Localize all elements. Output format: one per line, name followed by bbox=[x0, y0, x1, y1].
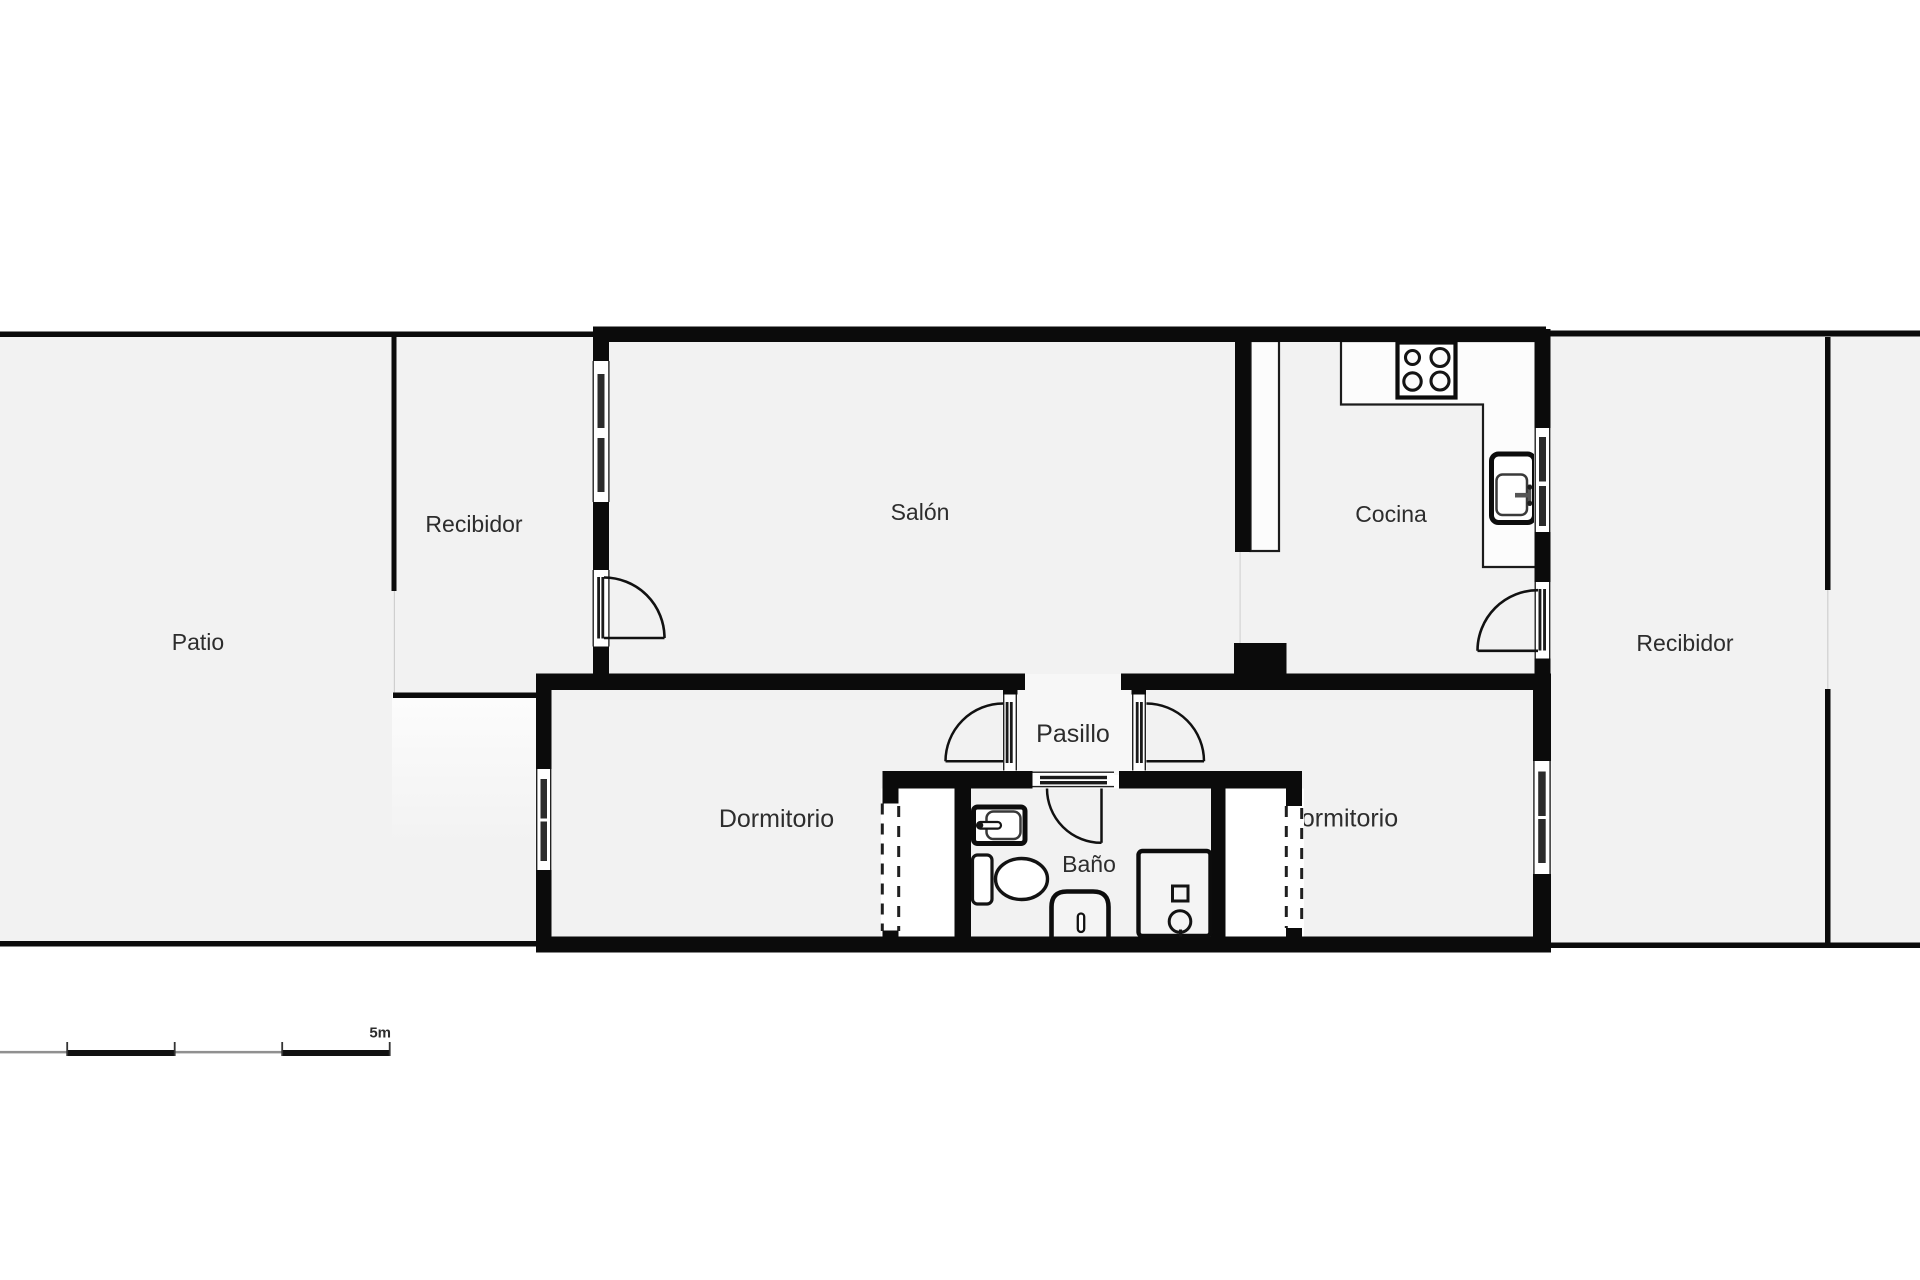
svg-text:Salón: Salón bbox=[891, 499, 950, 525]
svg-text:Recibidor: Recibidor bbox=[1636, 630, 1733, 656]
svg-text:Pasillo: Pasillo bbox=[1036, 720, 1110, 748]
svg-text:Cocina: Cocina bbox=[1355, 501, 1427, 527]
svg-text:5m: 5m bbox=[369, 1025, 391, 1042]
svg-text:Patio: Patio bbox=[172, 629, 224, 655]
svg-text:Dormitorio: Dormitorio bbox=[719, 805, 834, 833]
svg-text:Recibidor: Recibidor bbox=[425, 511, 522, 537]
svg-text:Baño: Baño bbox=[1062, 851, 1116, 877]
